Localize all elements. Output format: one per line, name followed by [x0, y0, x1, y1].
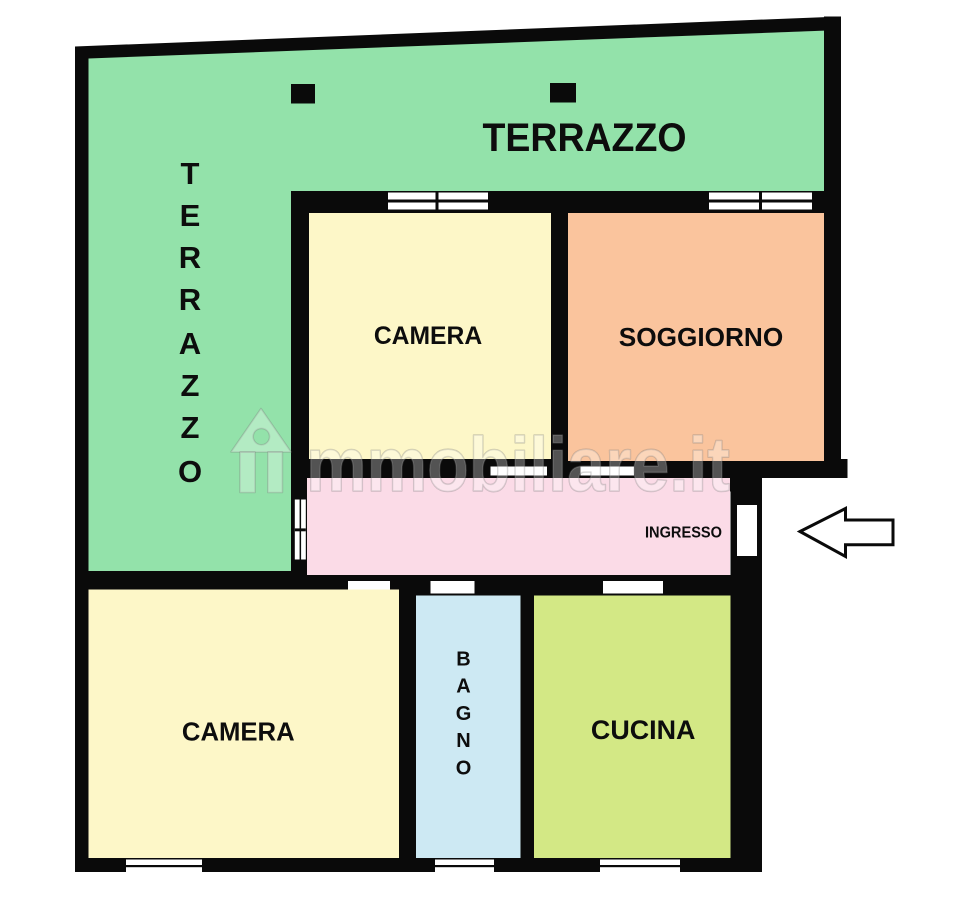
svg-text:CUCINA: CUCINA: [591, 715, 696, 745]
svg-text:Z: Z: [181, 410, 200, 445]
svg-text:Z: Z: [181, 368, 200, 403]
svg-text:mmobiliare.it: mmobiliare.it: [306, 422, 730, 508]
svg-text:G: G: [456, 703, 472, 725]
svg-text:A: A: [179, 326, 201, 361]
svg-text:E: E: [180, 198, 201, 233]
svg-text:CAMERA: CAMERA: [374, 323, 483, 350]
svg-text:O: O: [178, 454, 202, 489]
svg-text:INGRESSO: INGRESSO: [645, 525, 722, 542]
svg-text:N: N: [456, 730, 470, 752]
svg-text:CAMERA: CAMERA: [182, 718, 295, 746]
svg-text:O: O: [456, 758, 472, 780]
svg-text:SOGGIORNO: SOGGIORNO: [619, 322, 783, 352]
svg-text:B: B: [456, 648, 470, 670]
svg-text:T: T: [181, 156, 200, 191]
svg-text:R: R: [179, 282, 201, 317]
svg-text:R: R: [179, 240, 201, 275]
svg-text:TERRAZZO: TERRAZZO: [483, 116, 687, 160]
svg-text:A: A: [456, 676, 470, 698]
